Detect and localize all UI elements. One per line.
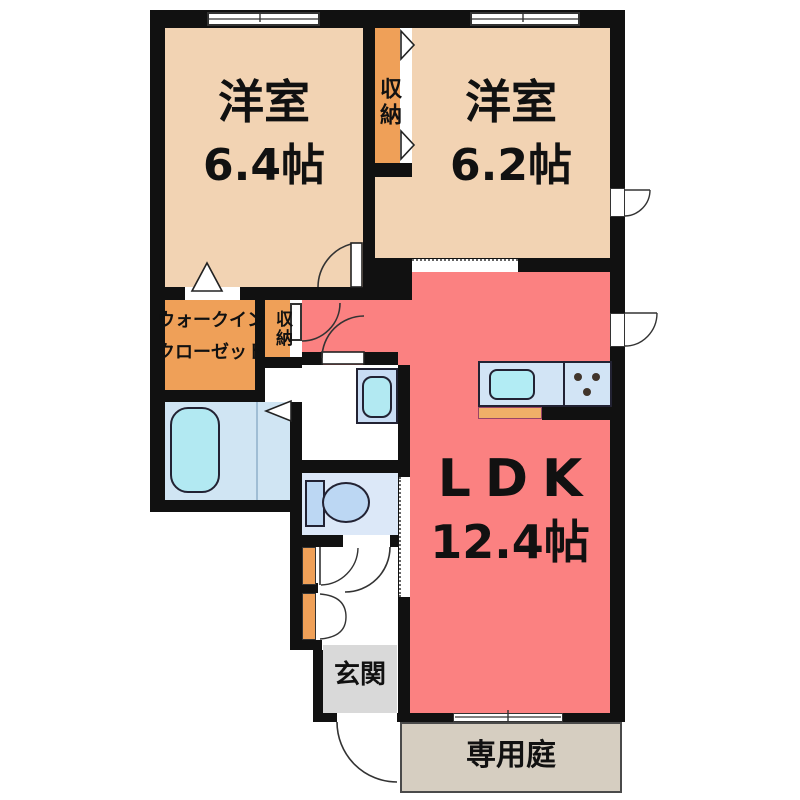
bathtub xyxy=(170,407,220,493)
bedroom62-side-window xyxy=(610,188,625,217)
wall-washroom-top-right xyxy=(363,352,398,365)
wall-washroom-top-left xyxy=(302,352,323,365)
wall-right xyxy=(610,10,625,722)
bedroom62-top-window xyxy=(470,12,580,26)
wall-hall-entrance-stub xyxy=(290,640,322,650)
bedroom-64-name: 洋室 xyxy=(165,78,363,126)
stove-burner-3 xyxy=(583,388,591,396)
washbasin-bowl xyxy=(362,376,392,418)
hall-cabinet-lower xyxy=(302,593,316,640)
walk-in-closet-label-line2: クローゼット xyxy=(157,344,255,363)
toilet-bowl xyxy=(322,482,370,523)
bedroom-64-area: 6.4帖 xyxy=(165,143,363,189)
entrance-label: 玄関 xyxy=(323,662,397,689)
wall-bottom-b xyxy=(397,713,453,722)
wall-kitchen-back xyxy=(542,407,612,420)
wall-closet-top-bottom xyxy=(363,163,412,177)
counter-front-strip xyxy=(478,407,542,419)
kitchen-counter-divider xyxy=(563,363,565,405)
bedroom-62-name: 洋室 xyxy=(412,78,610,126)
bedroom62-casement-arc xyxy=(625,190,650,216)
toilet-door-opening xyxy=(343,535,390,547)
bedroom64-top-window xyxy=(207,12,320,26)
bedroom-62-floor-notch xyxy=(375,177,412,258)
floor-plan: 洋室 6.4帖 洋室 6.2帖 収納 ウォークイン クローゼット 収納 LDK … xyxy=(0,0,800,800)
wic-door-opening xyxy=(185,287,240,300)
garden-label: 専用庭 xyxy=(400,740,622,772)
wall-entrance-left xyxy=(313,650,323,722)
wall-bottom-c xyxy=(563,713,625,722)
ldk-name: LDK xyxy=(410,452,610,507)
wall-wic-bottom xyxy=(150,390,255,402)
hall-ldk-sliding-door xyxy=(399,477,410,597)
closet-top-label: 収納 xyxy=(374,48,400,158)
stove-burner-1 xyxy=(574,373,582,381)
wall-left xyxy=(150,10,165,512)
ldk-area: 12.4帖 xyxy=(410,518,610,566)
kitchen-sink xyxy=(489,369,535,400)
entrance-door-arc xyxy=(337,722,397,782)
wall-washroom-toilet xyxy=(290,460,398,473)
entrance-door-opening xyxy=(337,713,397,722)
ldk-casement-arc xyxy=(625,313,657,346)
closet-top-door-strip xyxy=(400,28,412,163)
bedroom62-sliding-door xyxy=(412,259,518,272)
ldk-bottom-window xyxy=(453,713,563,722)
hall-floor xyxy=(302,547,398,645)
kitchen-counter xyxy=(478,361,612,407)
closet-hall-label: 収納 xyxy=(265,302,290,356)
ldk-side-window xyxy=(610,313,625,347)
washroom-alcove-floor xyxy=(265,368,302,402)
wall-bottom-a xyxy=(313,713,337,722)
wall-bathroom-bottom xyxy=(150,500,302,512)
hall-cabinet-upper xyxy=(302,547,316,585)
walk-in-closet-label-line1: ウォークイン xyxy=(157,312,255,331)
washbasin-unit xyxy=(356,368,398,424)
bathroom-divider-line xyxy=(256,402,258,500)
stove-burner-2 xyxy=(592,373,600,381)
bedroom-62-area: 6.2帖 xyxy=(412,143,610,189)
wall-midcolumn-left xyxy=(290,402,302,650)
